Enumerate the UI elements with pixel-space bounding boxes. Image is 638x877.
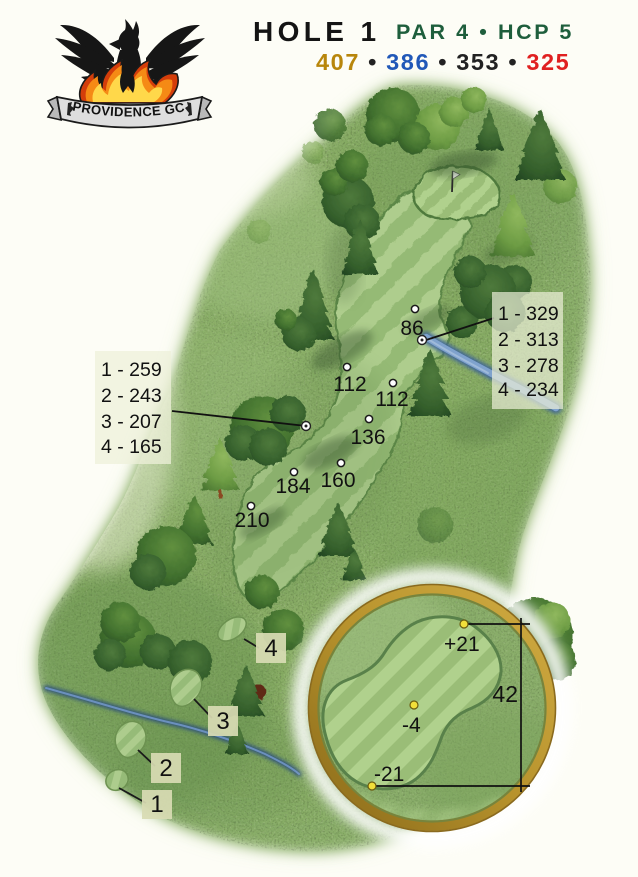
- svg-text:HOLE 1: HOLE 1: [253, 16, 381, 47]
- svg-text:1 - 259: 1 - 259: [101, 359, 162, 381]
- svg-text:2 - 243: 2 - 243: [101, 385, 162, 407]
- svg-text:112: 112: [375, 388, 408, 411]
- svg-text:-4: -4: [402, 714, 421, 737]
- svg-text:407 • 386 • 353 • 325: 407 • 386 • 353 • 325: [316, 49, 570, 75]
- svg-text:-21: -21: [374, 763, 404, 786]
- svg-text:PAR 4 • HCP 5: PAR 4 • HCP 5: [396, 20, 574, 44]
- svg-text:2 - 313: 2 - 313: [498, 329, 559, 351]
- svg-text:4 - 165: 4 - 165: [101, 436, 162, 458]
- svg-text:160: 160: [320, 469, 355, 492]
- svg-text:42: 42: [492, 681, 518, 707]
- svg-text:4 - 234: 4 - 234: [498, 379, 559, 401]
- svg-text:3 - 207: 3 - 207: [101, 411, 162, 433]
- svg-text:4: 4: [264, 635, 277, 662]
- svg-text:1 - 329: 1 - 329: [498, 303, 559, 325]
- svg-text:3 - 278: 3 - 278: [498, 355, 559, 377]
- svg-text:1: 1: [150, 791, 163, 818]
- svg-text:3: 3: [216, 708, 229, 735]
- svg-text:112: 112: [333, 373, 366, 396]
- svg-text:136: 136: [350, 426, 385, 449]
- svg-text:184: 184: [275, 475, 310, 498]
- svg-text:2: 2: [159, 755, 172, 782]
- svg-text:+21: +21: [444, 633, 480, 656]
- svg-text:210: 210: [234, 509, 269, 532]
